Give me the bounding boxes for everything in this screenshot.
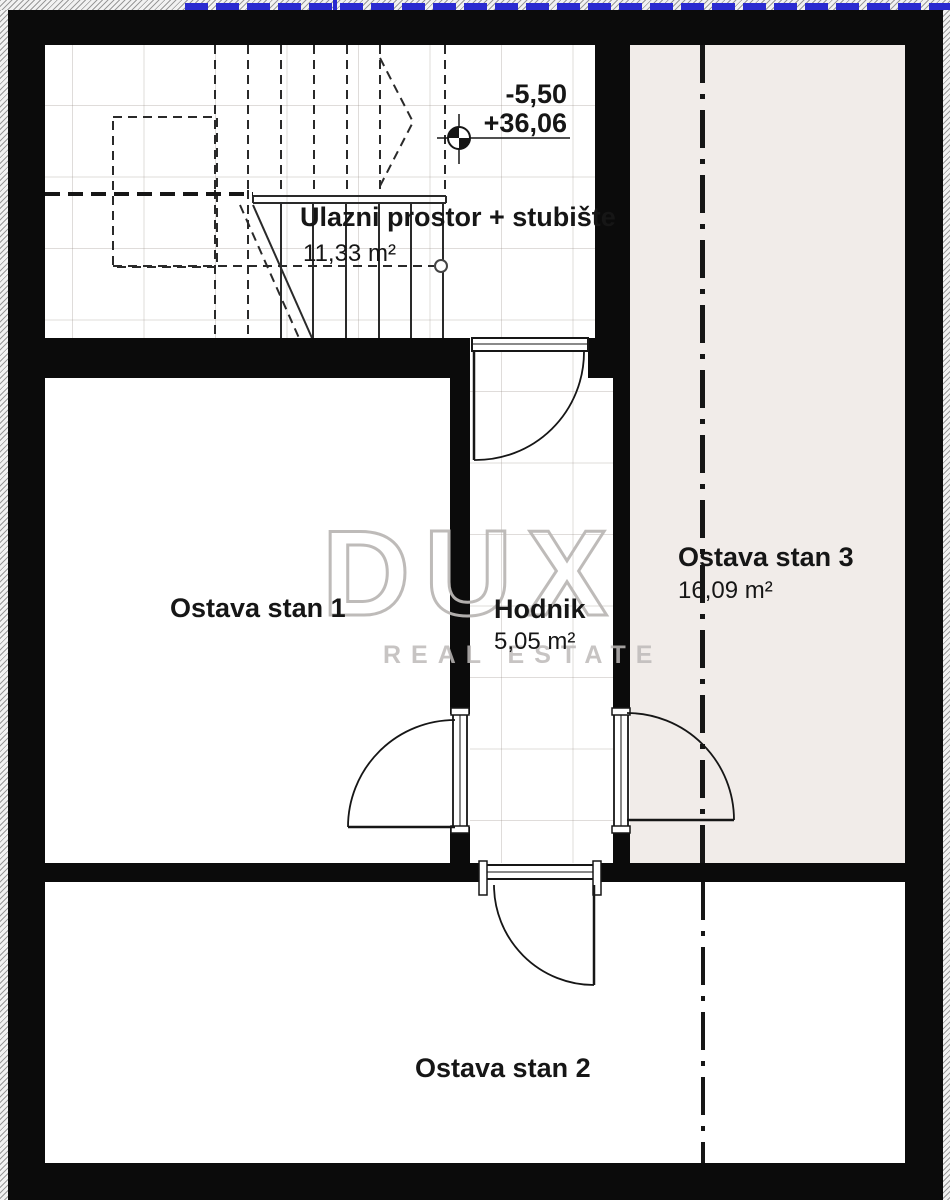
- room-label-ulazni: Ulazni prostor + stubište: [300, 203, 616, 231]
- wall-right: [905, 10, 943, 1200]
- room-label-ostava1: Ostava stan 1: [170, 594, 346, 622]
- room-area-hodnik: 5,05 m²: [494, 629, 575, 654]
- parcel-line-upper: [700, 45, 705, 863]
- room-area-ostava3: 16,09 m²: [678, 578, 773, 603]
- room-area-ulazni: 11,33 m²: [303, 241, 396, 266]
- room-ostava3-floor: [630, 45, 905, 863]
- wall-bottom: [8, 1163, 943, 1200]
- wall-lower-horizontal-right: [600, 863, 905, 882]
- parcel-line-lower: [701, 882, 705, 1163]
- top-boundary-blue-line: [185, 3, 950, 10]
- wall-hodnik-left-lower: [450, 827, 470, 863]
- room-label-ostava3: Ostava stan 3: [678, 543, 854, 571]
- wall-hodnik-right-lower: [613, 827, 630, 863]
- wall-left: [8, 10, 45, 1200]
- room-label-ostava2: Ostava stan 2: [415, 1054, 591, 1082]
- floor-plan: DUX REAL ESTATE -5,50 +36,06 Ulazni pros…: [0, 0, 950, 1200]
- left-boundary-hatch: [0, 10, 8, 1200]
- room-label-hodnik: Hodnik: [494, 595, 586, 623]
- level-absolute: +36,06: [457, 109, 567, 137]
- wall-top: [8, 10, 943, 45]
- right-boundary-hatch: [943, 10, 950, 1200]
- level-relative: -5,50: [457, 80, 567, 108]
- wall-mid-horizontal-left: [45, 338, 470, 378]
- boundary-blue-tick: [333, 0, 337, 10]
- room-ostava2-floor: [45, 882, 905, 1163]
- wall-lower-horizontal-left: [45, 863, 482, 882]
